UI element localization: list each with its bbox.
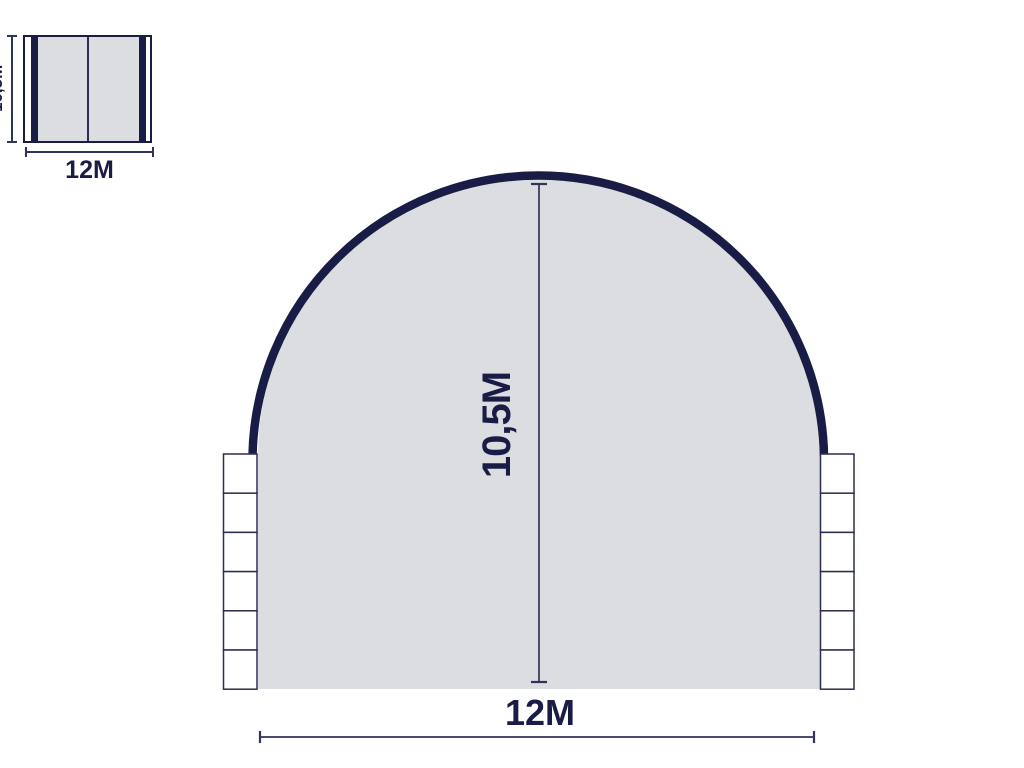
ballast-block xyxy=(224,454,258,493)
ballast-block xyxy=(821,532,855,571)
ballast-block xyxy=(821,493,855,532)
ballast-block xyxy=(224,493,258,532)
ballast-blocks-right xyxy=(821,454,855,689)
diagram-canvas: 10,5M 12M xyxy=(0,0,1024,768)
ballast-block xyxy=(224,532,258,571)
ballast-block xyxy=(224,611,258,650)
front-width-label: 12M xyxy=(440,692,640,734)
ballast-block xyxy=(224,650,258,689)
ballast-block xyxy=(821,650,855,689)
ballast-block xyxy=(821,454,855,493)
front-height-label: 10,5M xyxy=(475,345,519,505)
ballast-block xyxy=(821,572,855,611)
ballast-block xyxy=(821,611,855,650)
ballast-blocks-left xyxy=(224,454,258,689)
ballast-block xyxy=(224,572,258,611)
